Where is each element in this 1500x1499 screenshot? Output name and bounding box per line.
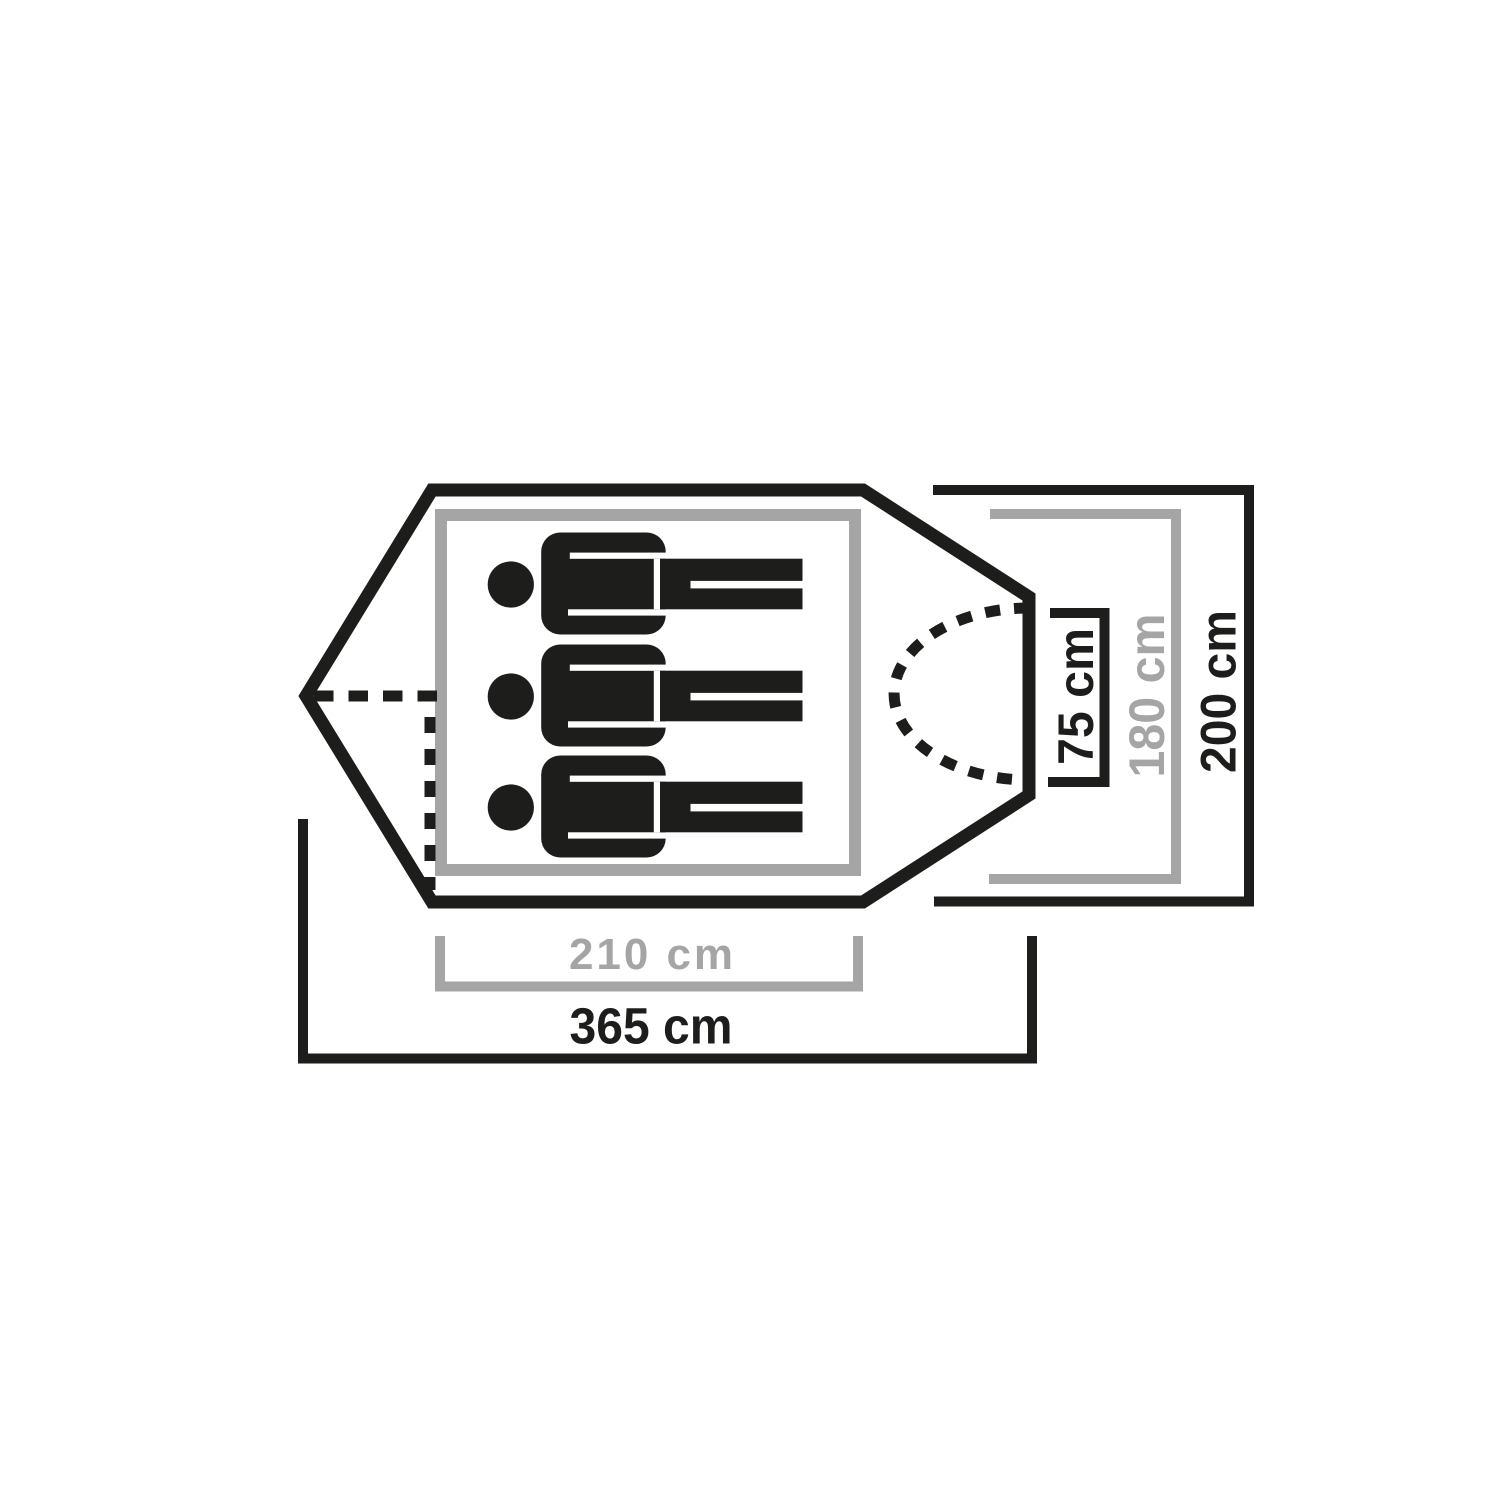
svg-text:210 cm: 210 cm	[569, 930, 733, 979]
svg-text:75 cm: 75 cm	[1048, 628, 1104, 765]
svg-text:180 cm: 180 cm	[1119, 614, 1175, 778]
svg-text:200 cm: 200 cm	[1191, 610, 1247, 773]
svg-text:365 cm: 365 cm	[570, 998, 733, 1055]
